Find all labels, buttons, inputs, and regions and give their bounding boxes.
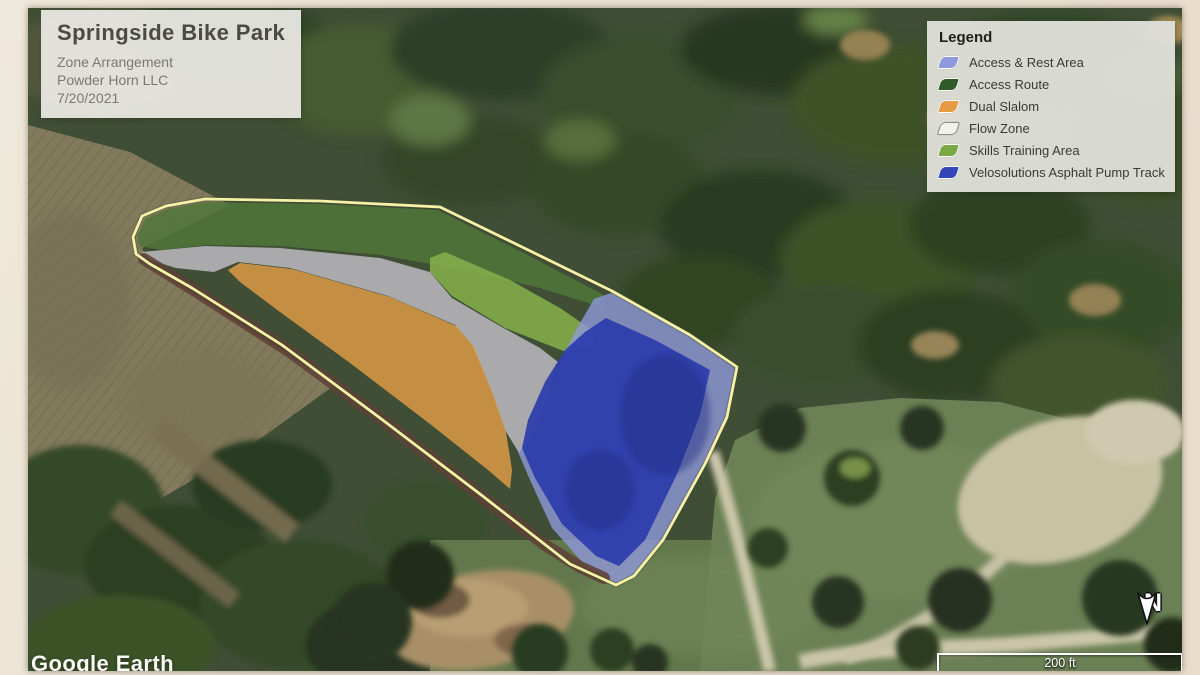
legend-item: Access & Rest Area [939, 51, 1169, 73]
legend-item: Velosolutions Asphalt Pump Track [939, 161, 1169, 183]
legend-item-label: Skills Training Area [969, 143, 1080, 158]
legend-swatch-icon [937, 144, 960, 157]
page-title: Springside Bike Park [57, 20, 289, 46]
legend-item-label: Flow Zone [969, 121, 1030, 136]
legend-title: Legend [939, 29, 1169, 46]
legend-swatch-icon [937, 166, 960, 179]
north-indicator: N [1136, 591, 1170, 616]
title-line-zone-arrangement: Zone Arrangement [57, 54, 289, 72]
legend-item-label: Dual Slalom [969, 99, 1039, 114]
legend-swatch-icon [937, 56, 960, 69]
title-line-company: Powder Horn LLC [57, 72, 289, 90]
legend-item-label: Access Route [969, 77, 1049, 92]
aerial-map-photo: Springside Bike Park Zone Arrangement Po… [28, 8, 1182, 671]
legend-item: Dual Slalom [939, 95, 1169, 117]
legend-item: Skills Training Area [939, 139, 1169, 161]
legend-swatch-icon [937, 122, 960, 135]
title-box: Springside Bike Park Zone Arrangement Po… [41, 10, 301, 118]
north-arrow-icon [1136, 592, 1158, 626]
scale-label: 200 ft [1044, 656, 1075, 670]
legend-item: Flow Zone [939, 117, 1169, 139]
scale-bar: 200 ft [937, 653, 1182, 671]
google-earth-watermark: Google Earth [31, 651, 174, 671]
legend-swatch-icon [937, 78, 960, 91]
legend: Legend Access & Rest Area Access Route D… [927, 21, 1175, 192]
title-line-date: 7/20/2021 [57, 90, 289, 108]
legend-item: Access Route [939, 73, 1169, 95]
legend-swatch-icon [937, 100, 960, 113]
legend-rows: Access & Rest Area Access Route Dual Sla… [939, 51, 1169, 183]
legend-item-label: Access & Rest Area [969, 55, 1084, 70]
legend-item-label: Velosolutions Asphalt Pump Track [969, 165, 1165, 180]
